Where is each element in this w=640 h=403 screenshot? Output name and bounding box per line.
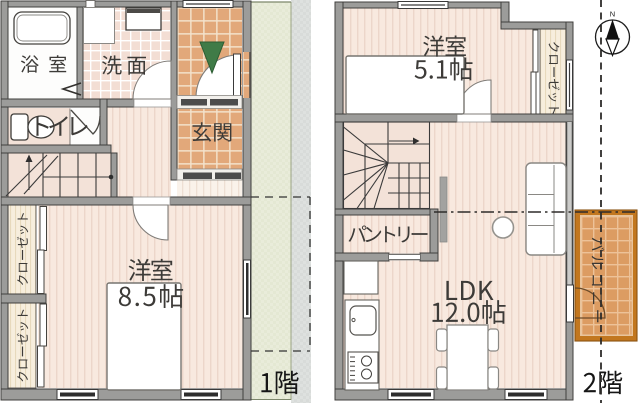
svg-text:N: N bbox=[610, 10, 615, 19]
